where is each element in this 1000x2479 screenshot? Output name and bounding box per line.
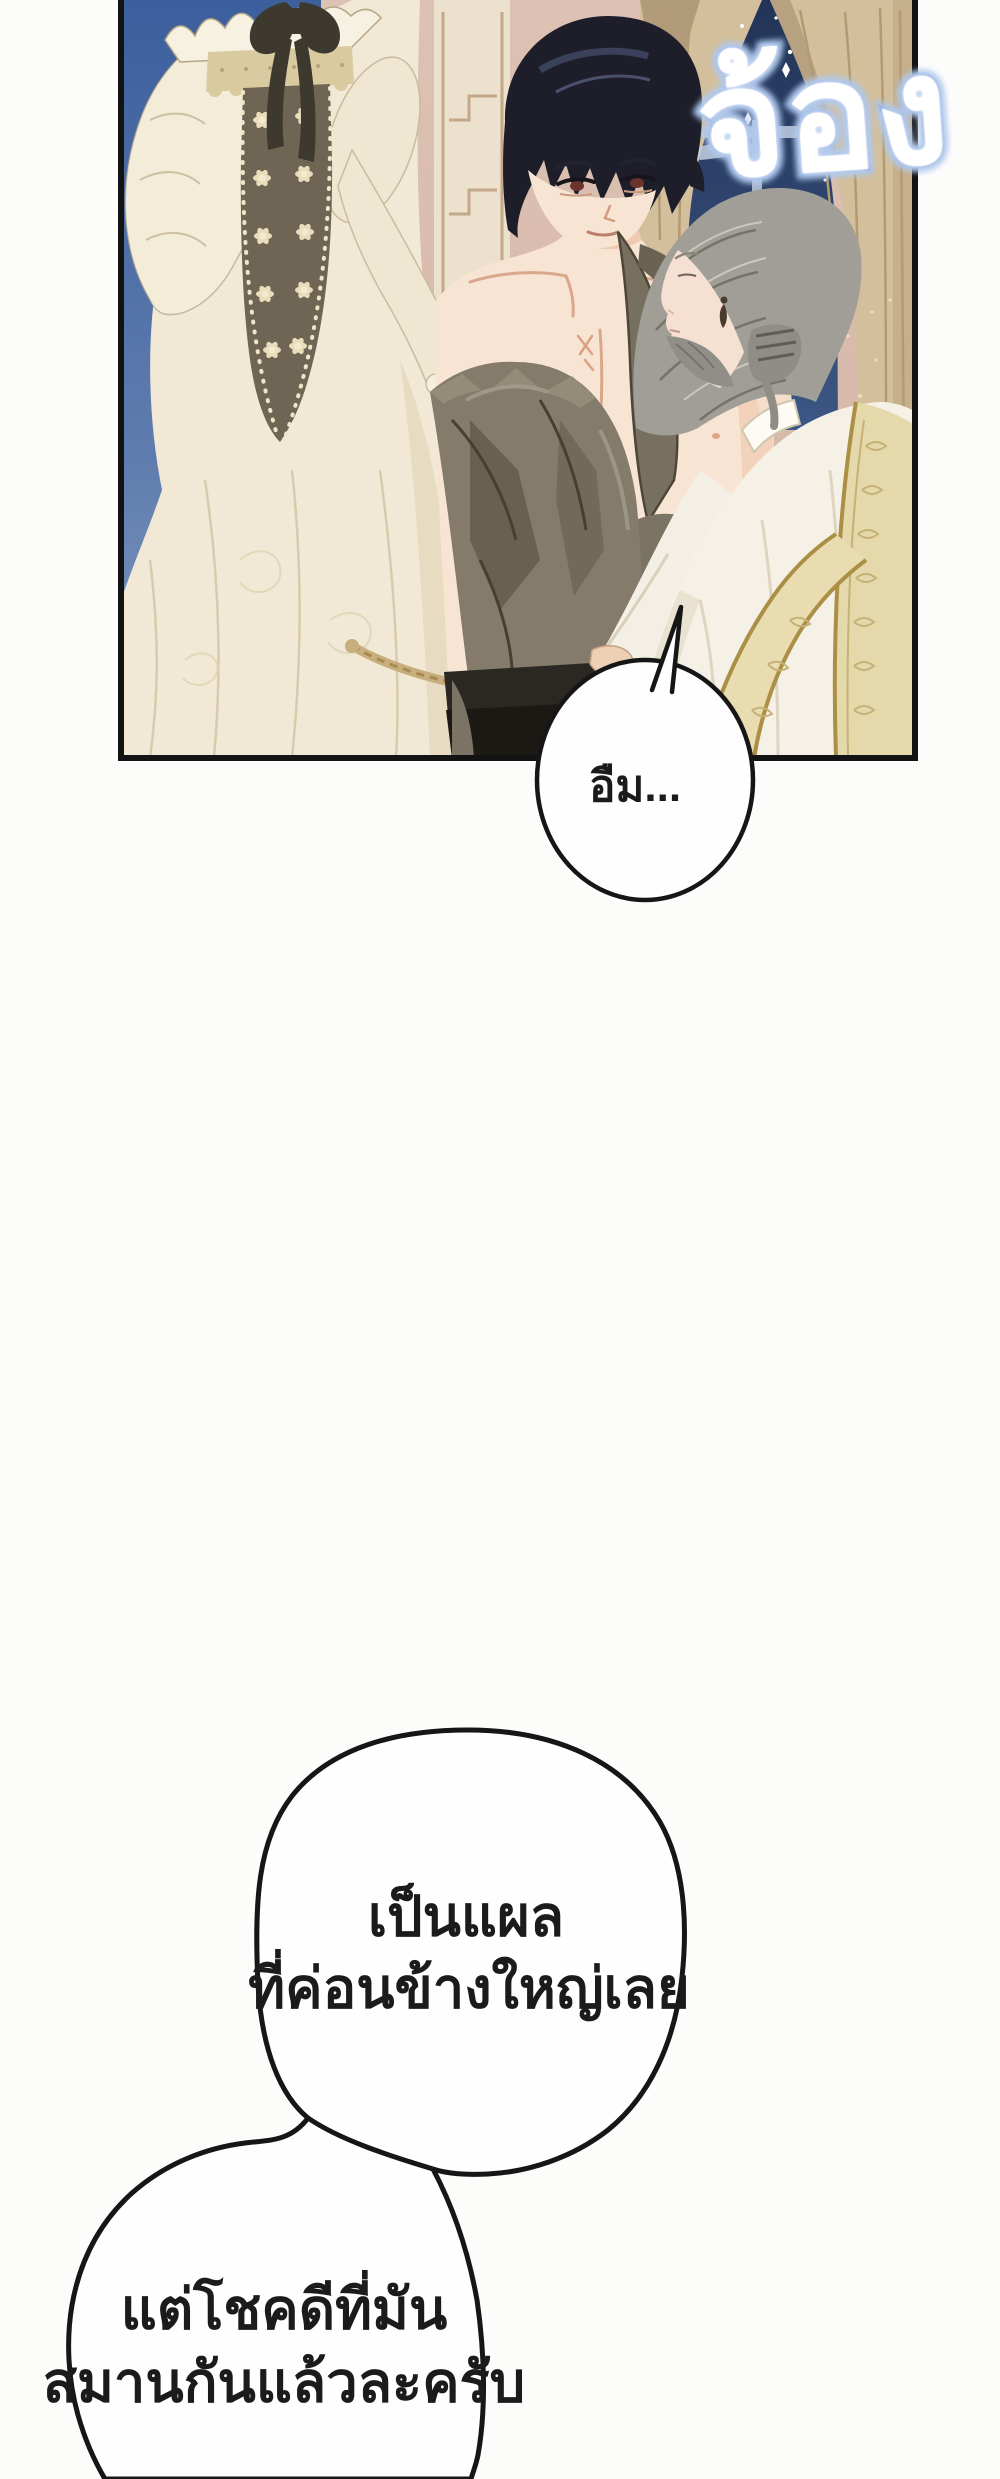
bubble-um-text: อืม... (589, 751, 681, 821)
comic-page: { "page": { "width": 1000, "height": 247… (0, 0, 1000, 2479)
sfx-fill-layer: จ้อง (691, 19, 954, 216)
bubble-wound-line2: ที่ค่อนข้างใหญ่เลย (248, 1944, 690, 2033)
sfx-stare: จ้อง จ้อง จ้อง (691, 16, 995, 246)
bubble-healed-line2: สมานกันแล้วละครับ (43, 2338, 525, 2427)
page-root: จ้อง จ้อง จ้อง อืม... เป็นแผล ที่ค่อนข้า… (0, 0, 1000, 2479)
